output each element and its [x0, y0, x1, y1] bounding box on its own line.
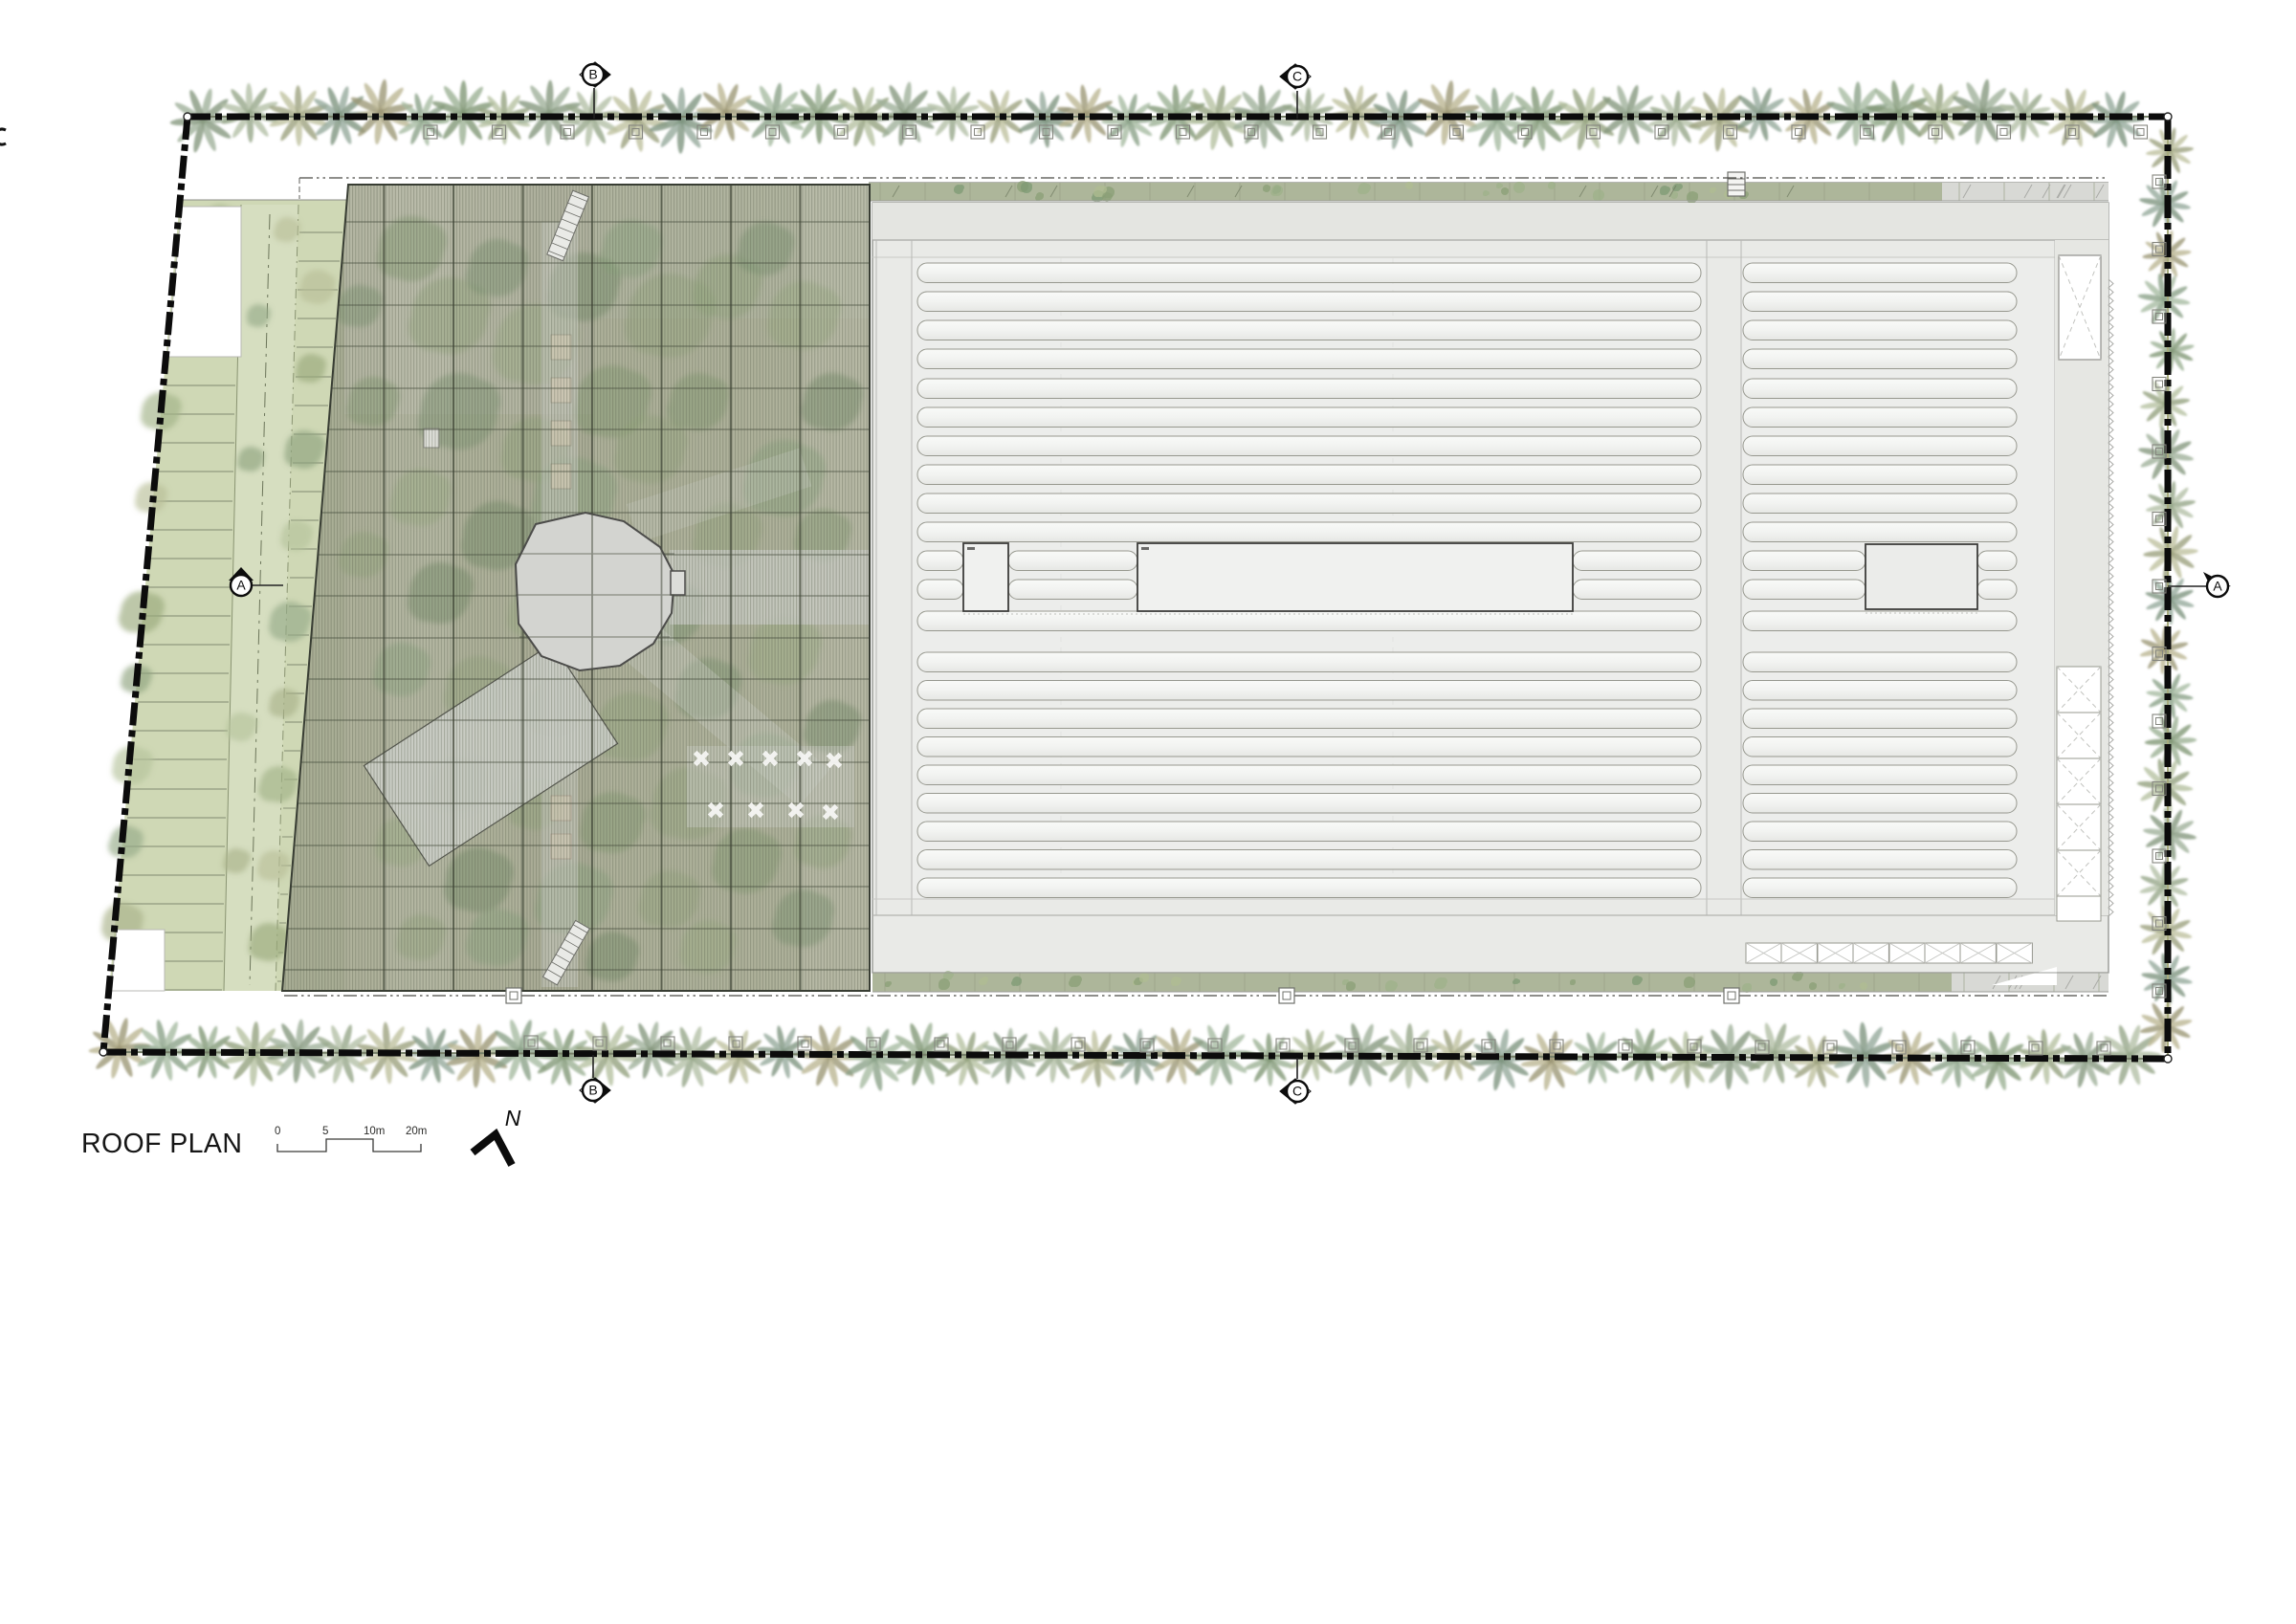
- svg-text:B: B: [588, 1083, 597, 1098]
- svg-text:ROOF PLAN: ROOF PLAN: [81, 1129, 242, 1159]
- svg-text:10m: 10m: [364, 1126, 385, 1137]
- svg-text:A: A: [236, 578, 246, 593]
- svg-text:20m: 20m: [406, 1126, 427, 1137]
- svg-text:N: N: [505, 1106, 521, 1130]
- svg-text:5: 5: [322, 1126, 328, 1137]
- svg-text:A: A: [2213, 579, 2222, 594]
- svg-text:C: C: [1292, 69, 1302, 84]
- svg-text:C: C: [1292, 1084, 1302, 1099]
- svg-text:B: B: [588, 67, 597, 82]
- svg-text:0: 0: [275, 1126, 280, 1137]
